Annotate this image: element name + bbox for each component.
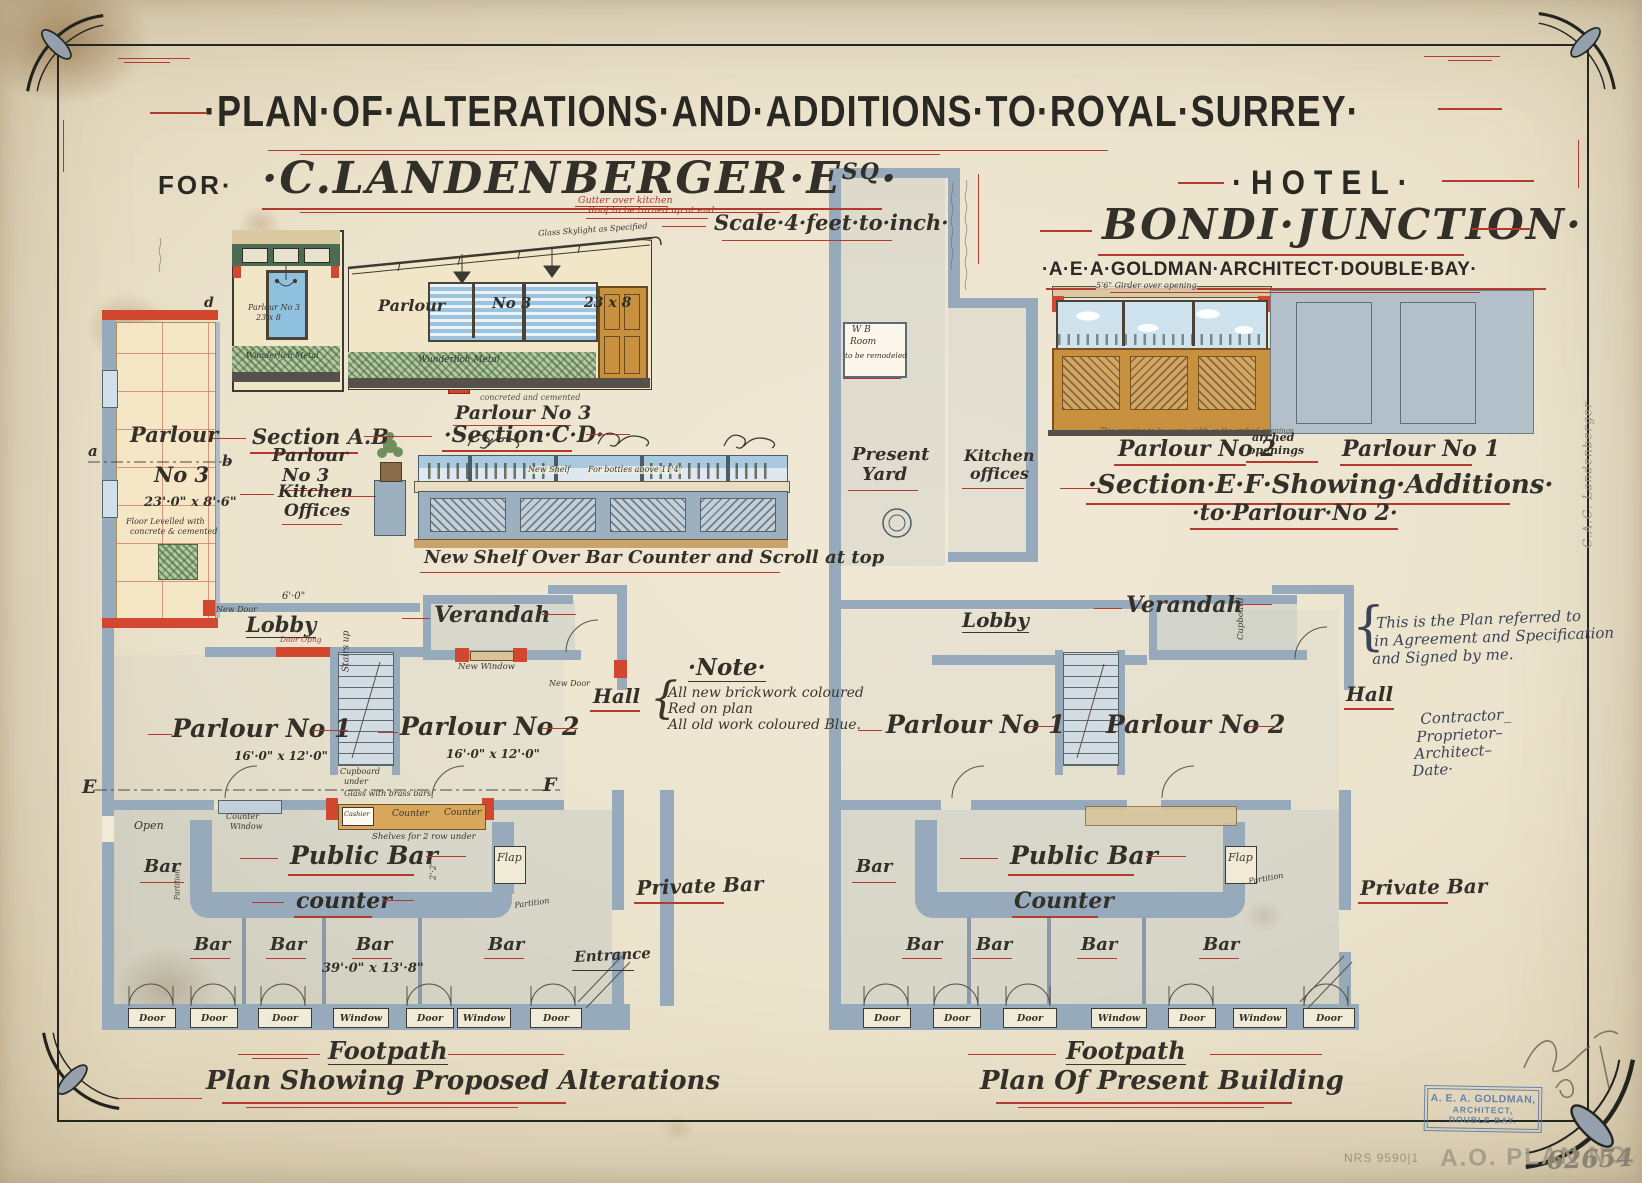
architect-stamp: A. E. A. GOLDMAN, ARCHITECT, DOUBLE BAY. xyxy=(1424,1085,1543,1133)
private-bar-label: Private Bar xyxy=(636,874,764,899)
kitchen-offices2: Offices xyxy=(284,503,350,521)
cupboard-label: Cupboard xyxy=(1237,597,1246,640)
note-heading: ·Note· xyxy=(688,656,766,682)
caption-underline xyxy=(1114,464,1246,466)
red-accent xyxy=(382,900,414,901)
red-accent xyxy=(586,218,708,219)
architect-underline xyxy=(1110,292,1480,293)
parlour3-no: No 3 xyxy=(154,464,209,486)
red-accent xyxy=(448,1054,564,1055)
lobby-label: Lobby xyxy=(246,614,316,638)
nrs-number: NRS 9590|1 xyxy=(1344,1152,1419,1165)
red-accent xyxy=(960,858,998,859)
bar-compartment-label: Bar xyxy=(194,936,230,955)
red-accent xyxy=(312,730,348,731)
private-bar-label: Private Bar xyxy=(1360,876,1487,899)
ao-plan-number: 62654 xyxy=(1546,1145,1634,1174)
bar-compartment-label: Bar xyxy=(270,936,306,955)
counter-label: Counter xyxy=(1014,890,1114,913)
margin-annotation: C.A.C. Landenberger xyxy=(1581,401,1594,548)
red-accent xyxy=(843,378,901,379)
stamp-line3: DOUBLE BAY. xyxy=(1428,1114,1538,1126)
red-accent xyxy=(1028,726,1054,727)
public-bar-label: Public Bar xyxy=(1010,843,1158,869)
red-accent xyxy=(388,436,432,437)
red-accent xyxy=(542,728,578,729)
caption-underline xyxy=(246,1107,518,1108)
red-accent xyxy=(1248,726,1278,727)
marker-f: F xyxy=(543,776,557,796)
red-accent xyxy=(1442,180,1534,182)
red-accent xyxy=(575,206,667,207)
red-accent xyxy=(282,524,342,525)
section-cd-room: Parlour xyxy=(378,298,445,315)
red-accent xyxy=(426,856,466,857)
kitchen-label1: Kitchen xyxy=(964,448,1035,465)
red-accent xyxy=(662,226,706,227)
caption-underline xyxy=(288,874,414,876)
bar-compartment-label: Bar xyxy=(356,936,392,955)
red-accent xyxy=(902,958,942,959)
red-accent xyxy=(238,1054,320,1055)
flap-label: Flap xyxy=(497,852,522,864)
note-line2: Red on plan xyxy=(668,702,753,717)
note-line1: All new brickwork coloured xyxy=(668,686,864,701)
client-main: ·C.LANDENBERGER·E xyxy=(262,153,842,204)
red-accent xyxy=(972,958,1012,959)
red-accent xyxy=(378,732,398,733)
cashier-label: Cashier xyxy=(344,811,369,818)
caption-underline xyxy=(1018,1107,1264,1108)
red-dimension-line xyxy=(978,174,979,264)
ef-caption1: ·Section·E·F·Showing·Additions· xyxy=(1088,472,1553,499)
present-yard-label2: Yard xyxy=(862,466,907,485)
scale-note: Scale·4·feet·to·inch· xyxy=(714,212,949,234)
new-shelf-note: New Shelf xyxy=(528,466,570,474)
title-underline xyxy=(268,150,1108,151)
section-cd-dim: 23 x 8 xyxy=(584,296,631,311)
drawing-sheet: ·PLAN·OF·ALTERATIONS·AND·ADDITIONS·TO·RO… xyxy=(0,0,1642,1183)
red-accent xyxy=(344,496,376,497)
new-door2-label: New Door xyxy=(549,680,590,688)
counter-window-label1: Counter xyxy=(226,813,259,821)
red-accent xyxy=(1448,60,1492,61)
parlour3-dim: 23'·0" x 8'·6" xyxy=(144,496,237,510)
hall-label: Hall xyxy=(593,686,640,707)
red-accent xyxy=(722,240,892,241)
floor-note2: concrete & cemented xyxy=(130,528,217,536)
caption-underline xyxy=(590,710,640,712)
red-accent xyxy=(1210,1054,1322,1055)
hall-label: Hall xyxy=(1346,684,1393,705)
footpath-label: Footpath xyxy=(328,1038,448,1065)
red-accent xyxy=(1077,958,1117,959)
caption-underline xyxy=(1358,902,1448,904)
wb-label3: to be remodeled xyxy=(845,352,907,360)
client-dot: · xyxy=(881,153,898,204)
counter-small-label2: Counter xyxy=(444,809,481,818)
location-underline xyxy=(1098,254,1464,256)
ef-arched-label1: arched xyxy=(1252,432,1294,444)
red-accent xyxy=(352,958,392,959)
present-yard-label1: Present xyxy=(852,446,929,465)
architect-stamp-inner: A. E. A. GOLDMAN, ARCHITECT, DOUBLE BAY. xyxy=(1427,1088,1540,1130)
left-plan-caption: Plan Showing Proposed Alterations xyxy=(206,1068,720,1095)
wb-label1: W B xyxy=(852,326,871,335)
bar-dim: 39'·0" x 13'·8" xyxy=(322,962,424,976)
note-line3: All old work coloured Blue. xyxy=(668,718,861,733)
glass-note: Glass with brass bars xyxy=(344,790,431,798)
bar-compartment-label: Bar xyxy=(1203,936,1239,955)
lobby-label: Lobby xyxy=(962,610,1029,633)
section-cd-caption-room: Parlour No 3 xyxy=(455,404,591,424)
verandah-label: Verandah xyxy=(1126,594,1243,617)
red-accent xyxy=(1094,608,1122,609)
gutter-note-line1: Gutter over kitchen xyxy=(578,196,673,206)
marker-d: d xyxy=(204,296,214,311)
red-accent xyxy=(150,112,206,114)
parlour3-label: Parlour xyxy=(130,424,218,446)
sheet-title: ·PLAN·OF·ALTERATIONS·AND·ADDITIONS·TO·RO… xyxy=(204,88,1360,134)
bar-compartment-label: Bar xyxy=(976,936,1012,955)
bar-compartment-label: Bar xyxy=(488,936,524,955)
section-ab-caption2: Parlour xyxy=(272,447,348,466)
entrance-underline xyxy=(572,970,634,971)
bar-compartment-label: Bar xyxy=(906,936,942,955)
red-accent xyxy=(266,958,306,959)
cupboard-label1: Cupboard xyxy=(340,768,380,776)
kitchen-offices1: Kitchen xyxy=(278,484,353,502)
location-label: BONDI·JUNCTION· xyxy=(1102,203,1583,247)
red-accent xyxy=(1146,856,1186,857)
section-cd-dado-label: Wunderlich Metal xyxy=(418,356,500,365)
shelf-caption: New Shelf Over Bar Counter and Scroll at… xyxy=(424,549,884,568)
red-accent xyxy=(190,958,230,959)
stamp-line1: A. E. A. GOLDMAN, xyxy=(1428,1092,1538,1106)
parlour1-dim: 16'·0" x 12'·0" xyxy=(234,750,328,763)
red-accent xyxy=(852,882,896,883)
caption-underline xyxy=(1190,528,1398,530)
marker-a: a xyxy=(88,444,98,460)
new-window-label: New Window xyxy=(458,663,515,672)
caption-underline xyxy=(420,572,780,573)
red-accent xyxy=(1060,488,1100,489)
bar-compartment-label: Bar xyxy=(1081,936,1117,955)
client-esq-sup: SQ xyxy=(842,159,881,185)
section-ab-room-label: Parlour No 3 xyxy=(248,304,300,312)
red-accent xyxy=(962,488,1024,489)
red-accent xyxy=(118,58,190,59)
red-accent xyxy=(148,734,172,735)
bottles-note: For bottles above 11'4" xyxy=(588,466,682,474)
red-accent xyxy=(1438,108,1502,110)
counter-label: counter xyxy=(296,890,392,913)
red-accent xyxy=(63,120,64,172)
ef-caption2: ·to·Parlour·No 2· xyxy=(1192,502,1398,525)
public-bar-label: Public Bar xyxy=(290,843,438,869)
date-line: Date· xyxy=(1412,762,1453,780)
girder-note: 5'6" Girder over opening xyxy=(1096,282,1197,290)
caption-underline xyxy=(634,902,724,904)
footpath-label: Footpath xyxy=(1066,1038,1186,1065)
marker-b: b xyxy=(222,454,233,470)
caption-underline xyxy=(1246,461,1318,463)
red-accent xyxy=(484,958,524,959)
kitchen-label2: offices xyxy=(970,466,1029,483)
bar-left-label: Bar xyxy=(856,858,892,877)
red-accent xyxy=(586,434,630,435)
caption-underline xyxy=(294,916,372,918)
red-accent xyxy=(240,494,274,495)
hotel-label: ·HOTEL· xyxy=(1232,165,1417,201)
section-ab-room-dim: 23 x 8 xyxy=(256,314,281,322)
ef-arched-label2: openings xyxy=(1248,445,1304,457)
section-cd-caption: ·Section·C·D· xyxy=(444,424,604,447)
gutter-note-line2: Roof to be turned up at end xyxy=(588,207,714,216)
caption-underline xyxy=(222,1102,566,1104)
counter-small-label: Counter xyxy=(392,810,429,819)
flap-label: Flap xyxy=(1228,852,1253,864)
red-accent xyxy=(1178,182,1224,184)
red-accent xyxy=(124,62,170,63)
ef-parlour1-label: Parlour No 1 xyxy=(1342,438,1500,461)
architect-credit: ·A·E·A·GOLDMAN·ARCHITECT·DOUBLE·BAY· xyxy=(1042,260,1477,280)
red-accent xyxy=(1578,140,1579,188)
red-accent xyxy=(1040,230,1092,232)
counter-dim: 2'·2" xyxy=(430,861,438,880)
caption-underline xyxy=(1344,708,1394,710)
red-accent xyxy=(968,1054,1056,1055)
red-accent xyxy=(542,614,576,615)
stairs-label: Stairs up xyxy=(343,631,352,672)
section-cd-no: No 3 xyxy=(492,296,531,312)
red-accent xyxy=(252,902,284,903)
red-accent xyxy=(240,858,278,859)
right-plan-caption: Plan Of Present Building xyxy=(980,1068,1344,1095)
cupboard-label2: under xyxy=(344,778,368,786)
verandah-label: Verandah xyxy=(434,604,551,627)
caption-underline xyxy=(1340,464,1472,466)
floor-note1: Floor Levelled with xyxy=(126,518,205,526)
for-label: FOR· xyxy=(158,172,234,199)
wb-label2: Room xyxy=(850,338,876,347)
caption-underline xyxy=(442,450,572,452)
red-accent xyxy=(1472,228,1530,230)
partition-label: Partition xyxy=(175,869,182,900)
caption-underline xyxy=(996,1102,1292,1104)
caption-underline xyxy=(1008,874,1134,876)
marker-e: E xyxy=(82,778,96,798)
counter-window-label2: Window xyxy=(230,823,263,831)
red-accent xyxy=(252,1058,308,1059)
red-accent xyxy=(1424,56,1500,57)
red-accent xyxy=(848,490,918,491)
red-accent xyxy=(858,730,882,731)
red-accent xyxy=(1199,958,1239,959)
lobby-dim: 6'·0" xyxy=(282,592,305,603)
caption-underline xyxy=(1012,916,1098,918)
parlour2-dim: 16'·0" x 12'·0" xyxy=(446,748,540,761)
red-accent xyxy=(402,618,430,619)
section-ab-dado-label: Wunderlich Metal xyxy=(246,352,319,360)
red-accent xyxy=(118,1098,202,1099)
open-label: Open xyxy=(134,820,164,832)
